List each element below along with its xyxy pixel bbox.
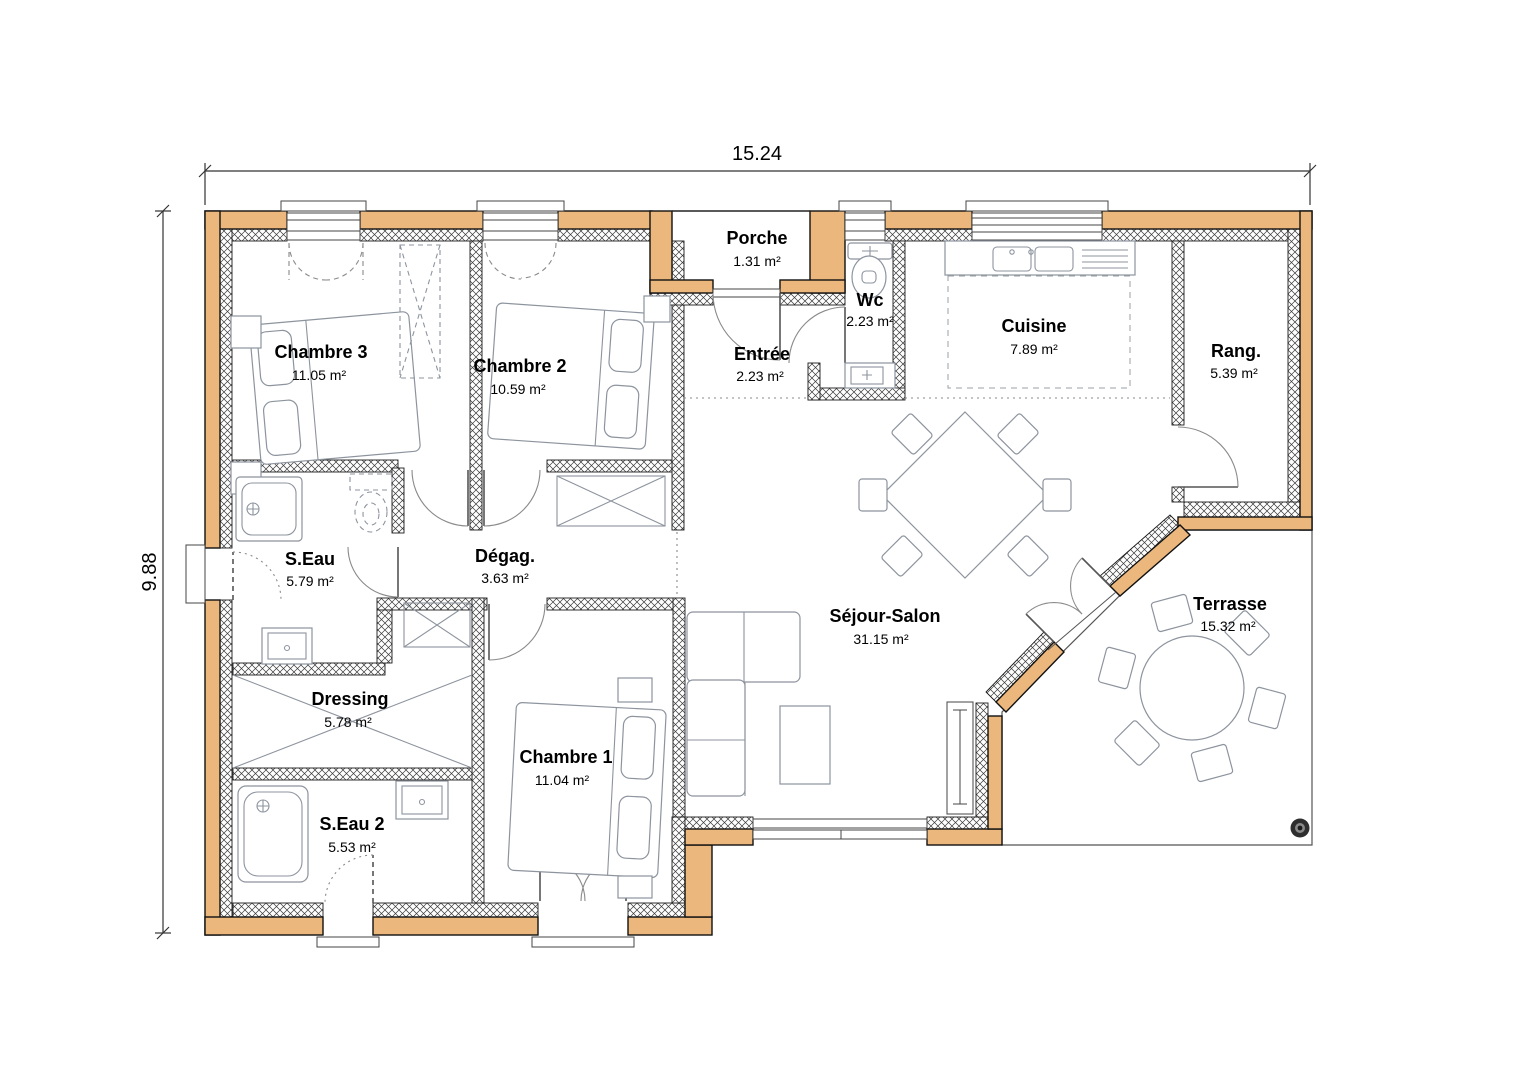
- room-area-seau: 5.79 m²: [286, 573, 334, 589]
- room-area-sejour: 31.15 m²: [853, 631, 909, 647]
- basin-seau: [262, 628, 312, 664]
- room-label-terrasse: Terrasse: [1193, 594, 1267, 614]
- room-area-chambre2: 10.59 m²: [490, 381, 546, 397]
- room-area-terrasse: 15.32 m²: [1200, 618, 1256, 634]
- room-area-chambre3: 11.05 m²: [292, 367, 347, 383]
- room-label-dressing: Dressing: [311, 689, 388, 709]
- dot-logo-icon: [1291, 819, 1310, 838]
- room-area-wc: 2.23 m²: [846, 313, 894, 329]
- floor-plan-page: Chambre 3 11.05 m² Chambre 2 10.59 m² Po…: [0, 0, 1527, 1080]
- closet-chambre3: [400, 245, 440, 378]
- room-area-chambre1: 11.04 m²: [535, 772, 590, 788]
- window-sill: [281, 201, 366, 211]
- basin-seau2: [396, 781, 448, 819]
- room-label-porche: Porche: [726, 228, 787, 248]
- shower-seau: [236, 477, 302, 541]
- room-area-cuisine: 7.89 m²: [1010, 341, 1058, 357]
- room-area-porche: 1.31 m²: [733, 253, 781, 269]
- bed-chambre2: [487, 303, 654, 450]
- dimension-height: 9.88: [139, 205, 171, 939]
- room-area-entree: 2.23 m²: [736, 368, 784, 384]
- basin-wc: [845, 363, 895, 388]
- room-label-cuisine: Cuisine: [1001, 316, 1066, 336]
- room-label-chambre2: Chambre 2: [473, 356, 566, 376]
- bed-chambre3: [249, 311, 421, 464]
- kitchen-counter: [945, 241, 1135, 388]
- dimension-height-label: 9.88: [139, 553, 161, 592]
- closet-degagement: [557, 476, 665, 526]
- room-area-rangement: 5.39 m²: [1210, 365, 1258, 381]
- floor-plan-drawing: Chambre 3 11.05 m² Chambre 2 10.59 m² Po…: [0, 0, 1527, 1080]
- nightstand: [644, 296, 670, 322]
- nightstand: [618, 876, 652, 898]
- toilet-seau: [350, 474, 392, 532]
- room-label-rangement: Rang.: [1211, 341, 1261, 361]
- room-area-degagement: 3.63 m²: [481, 570, 529, 586]
- room-label-entree: Entrée: [734, 344, 790, 364]
- nightstand: [618, 678, 652, 702]
- dimension-width: 15.24: [199, 143, 1316, 205]
- room-label-sejour: Séjour-Salon: [829, 606, 940, 626]
- dimension-width-label: 15.24: [732, 143, 782, 165]
- room-label-chambre1: Chambre 1: [519, 747, 612, 767]
- room-label-chambre3: Chambre 3: [274, 342, 367, 362]
- nightstand: [231, 316, 261, 348]
- room-label-wc: Wc: [857, 290, 884, 310]
- dining-table: [859, 412, 1071, 578]
- room-label-seau: S.Eau: [285, 549, 335, 569]
- bed-chambre1: [508, 702, 667, 878]
- coffee-table: [780, 706, 830, 784]
- room-label-seau2: S.Eau 2: [319, 814, 384, 834]
- room-area-seau2: 5.53 m²: [328, 839, 376, 855]
- room-label-degagement: Dégag.: [475, 546, 535, 566]
- room-area-dressing: 5.78 m²: [324, 714, 372, 730]
- bathtub-seau2: [238, 786, 308, 882]
